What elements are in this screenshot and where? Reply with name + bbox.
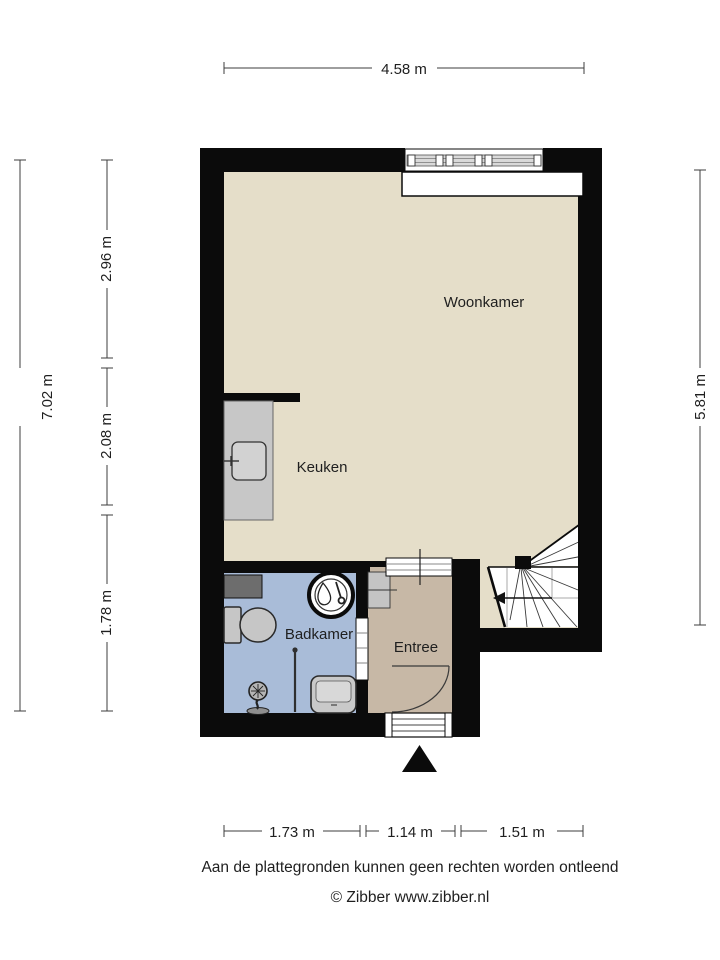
dim-left-segments: 2.96 m 2.08 m 1.78 m: [98, 160, 115, 711]
kitchen-counter: [224, 401, 273, 520]
label-keuken: Keuken: [297, 459, 348, 476]
footer: Aan de plattegronden kunnen geen rechten…: [201, 859, 618, 906]
entrance-marker-triangle: [402, 745, 437, 772]
washbasin: [311, 676, 356, 713]
dim-left-total: 7.02 m: [14, 160, 56, 711]
dim-bottom-segments: 1.73 m 1.14 m 1.51 m: [224, 824, 583, 841]
footer-copyright: © Zibber www.zibber.nl: [331, 889, 490, 906]
wall-bottom-left: [200, 713, 385, 737]
window-sill: [402, 172, 583, 196]
wall-bathroom-top: [212, 561, 370, 573]
dim-left-seg3-label: 1.78 m: [98, 590, 115, 636]
footer-disclaimer: Aan de plattegronden kunnen geen rechten…: [201, 859, 618, 876]
dim-bottom-seg1-label: 1.73 m: [269, 824, 315, 841]
bathroom-door: [356, 618, 368, 680]
dim-top: 4.58 m: [224, 61, 584, 78]
wall-bath-hall-upper: [356, 573, 368, 620]
dim-left-seg1-label: 2.96 m: [98, 236, 115, 282]
utility-box: [224, 575, 262, 598]
boiler-circle: [309, 573, 353, 617]
dim-right: 5.81 m: [692, 170, 709, 625]
wall-bath-hall-lower: [356, 678, 368, 713]
dim-left-total-label: 7.02 m: [39, 374, 56, 420]
wall-left: [200, 148, 224, 737]
wall-top-left: [200, 148, 405, 172]
dim-bottom-seg3-label: 1.51 m: [499, 824, 545, 841]
door-threshold: [385, 713, 452, 737]
dim-top-label: 4.58 m: [381, 61, 427, 78]
label-woonkamer: Woonkamer: [444, 294, 525, 311]
dim-right-label: 5.81 m: [692, 374, 709, 420]
wall-hall-right: [452, 559, 480, 737]
label-entree: Entree: [394, 639, 438, 656]
dim-bottom-seg2-label: 1.14 m: [387, 824, 433, 841]
floor-plan: Woonkamer Keuken Badkamer Entree 4.58 m …: [0, 0, 720, 960]
wall-right: [578, 148, 602, 652]
wall-over-cupboard: [368, 561, 388, 567]
label-badkamer: Badkamer: [285, 626, 353, 643]
dim-left-seg2-label: 2.08 m: [98, 413, 115, 459]
window: [405, 149, 543, 171]
stair-newel-post: [515, 556, 531, 569]
toilet: [224, 607, 276, 643]
